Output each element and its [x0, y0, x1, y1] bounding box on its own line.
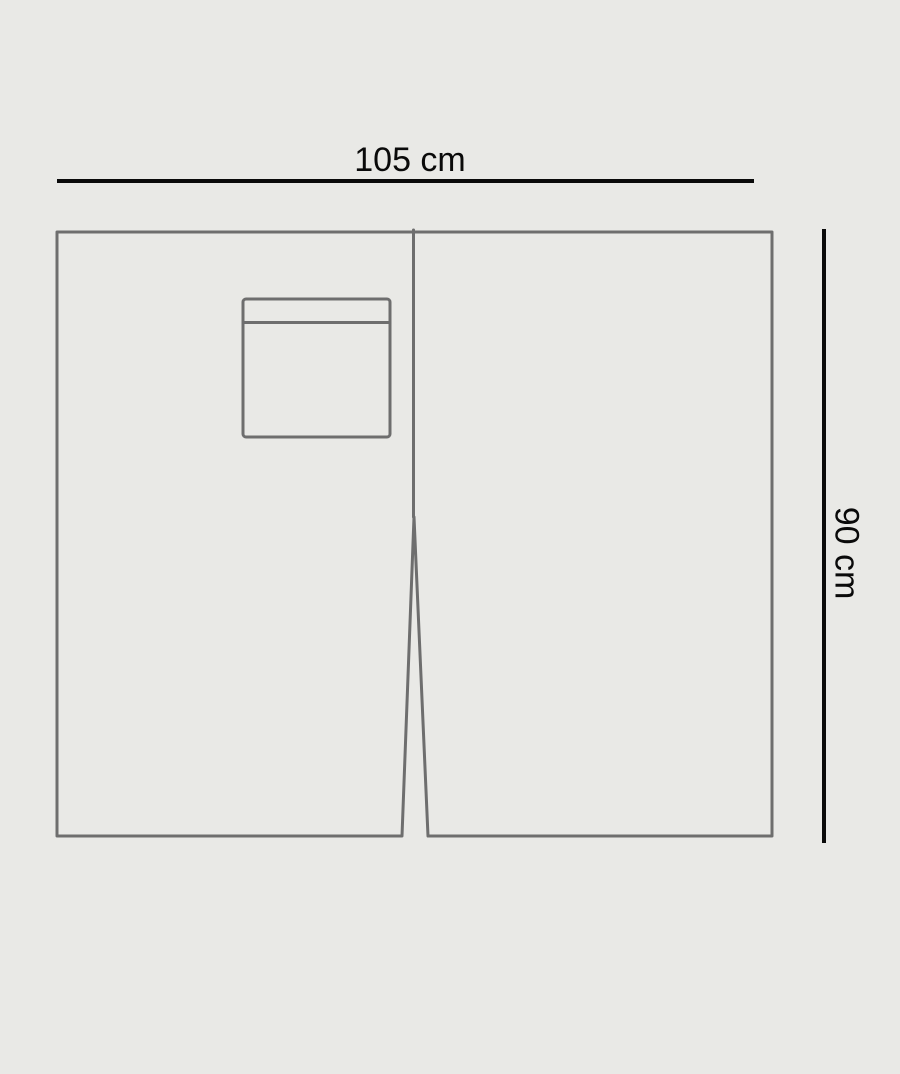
width-dimension-label: 105 cm: [354, 141, 466, 180]
dimension-diagram-canvas: 105 cm 90 cm: [0, 0, 900, 1074]
height-dimension-label: 90 cm: [826, 507, 865, 600]
pocket-outline: [243, 299, 390, 437]
